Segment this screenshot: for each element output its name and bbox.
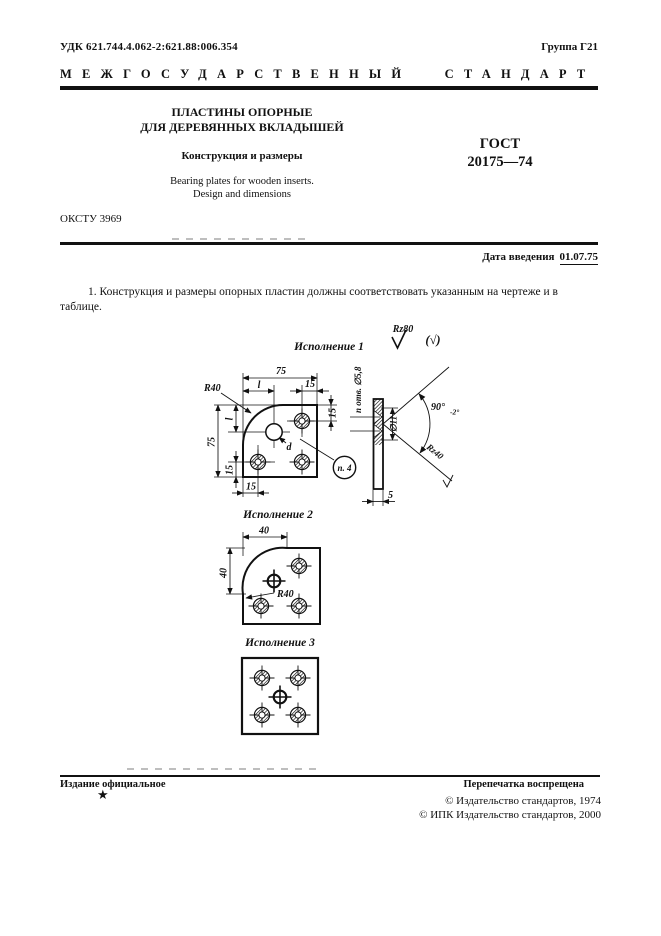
plate-outline (243, 548, 320, 624)
countersunk-hole (286, 666, 311, 691)
variant2-plan-view: Исполнение 2 40 40 R40 (219, 509, 321, 624)
dim-width-40: 40 (258, 526, 269, 537)
technical-drawing: Rz80 (√) Исполнение 1 75 l (150, 318, 522, 748)
dim-15-top: 15 (305, 379, 315, 390)
countersunk-hole (287, 554, 312, 579)
copyright-block: © Издательство стандартов, 1974 © ИПК Из… (419, 795, 601, 822)
variant1-side-view: n отв. ∅5,8 ∅11 90° -2° Rz40 5 (350, 366, 459, 506)
variant2-label: Исполнение 2 (242, 509, 313, 521)
countersunk-hole (286, 703, 311, 728)
angle-tolerance-label: -2° (450, 408, 459, 417)
effective-date-value: 01.07.75 (560, 251, 599, 265)
official-edition-label: Издание официальное (60, 779, 166, 790)
title-ru-line1: ПЛАСТИНЫ ОПОРНЫЕ (98, 105, 386, 120)
roughness-marks: Rz80 (√) (392, 324, 441, 348)
center-hole (269, 686, 292, 709)
variant3-label: Исполнение 3 (244, 637, 315, 649)
gost-number: 20175—74 (430, 153, 570, 171)
dim-15-left: 15 (225, 465, 236, 475)
footer-rule (60, 775, 600, 777)
variant1-plan-view: Исполнение 1 75 l 15 (203, 341, 364, 497)
dim-l-left: l (225, 417, 236, 420)
gost-designation: ГОСТ 20175—74 (430, 135, 570, 171)
standard-subtitle: Конструкция и размеры (98, 150, 386, 162)
star-icon: ★ (97, 787, 109, 803)
title-separator-rule (60, 242, 598, 245)
countersunk-hole (250, 703, 275, 728)
angle-label: 90° (431, 402, 445, 413)
roughness-alt-label: (√) (425, 333, 440, 347)
variant3-plan-view: Исполнение 3 (242, 637, 318, 734)
countersunk-hole (290, 450, 315, 475)
title-en-line1: Bearing plates for wooden inserts. (98, 176, 386, 189)
countersunk-hole (250, 666, 275, 691)
countersunk-hole (246, 450, 271, 475)
dim-height-40: 40 (219, 568, 230, 579)
effective-date-label: Дата введения (482, 251, 554, 263)
gost-label: ГОСТ (430, 135, 570, 153)
group-code: Группа Г21 (541, 41, 598, 53)
effective-date-line: Дата введения01.07.75 (482, 251, 598, 263)
title-ru-line2: ДЛЯ ДЕРЕВЯННЫХ ВКЛАДЫШЕЙ (98, 120, 386, 135)
thickness-label: 5 (388, 490, 393, 501)
variant1-label: Исполнение 1 (293, 341, 364, 353)
scan-artifact-bottom (127, 768, 322, 770)
gost-standard-page: УДК 621.744.4.062-2:621.88:006.354 Групп… (0, 0, 661, 936)
clause-1-text: 1. Конструкция и размеры опорных пластин… (60, 285, 601, 314)
countersunk-hole (290, 409, 315, 434)
udk-classification: УДК 621.744.4.062-2:621.88:006.354 (60, 41, 238, 53)
holes-note: n отв. ∅5,8 (353, 366, 363, 413)
dim-width-75: 75 (276, 366, 286, 377)
hole-diameter-label-d: d (287, 442, 293, 453)
title-en-line2: Design and dimensions (98, 189, 386, 202)
chamfer-roughness-label: Rz40 (424, 441, 446, 461)
standard-kind-heading: МЕЖГОСУДАРСТВЕННЫЙ СТАНДАРТ (60, 67, 605, 82)
radius-label-r40: R40 (203, 383, 221, 394)
dim-15-bottom: 15 (246, 482, 256, 493)
reprint-prohibited-label: Перепечатка воспрещена (464, 779, 584, 790)
dim-15-right: 15 (328, 408, 339, 418)
okstu-code: ОКСТУ 3969 (60, 213, 122, 225)
scan-artifact-top (172, 238, 307, 240)
dim-l-top: l (258, 380, 261, 391)
standard-title-ru: ПЛАСТИНЫ ОПОРНЫЕ ДЛЯ ДЕРЕВЯННЫХ ВКЛАДЫШЕ… (98, 105, 386, 134)
copyright-1974: © Издательство стандартов, 1974 (419, 795, 601, 809)
standard-title-en: Bearing plates for wooden inserts. Desig… (98, 176, 386, 201)
center-hole (266, 424, 282, 440)
roughness-main-label: Rz80 (392, 324, 414, 335)
dim-height-75: 75 (207, 437, 218, 447)
radius-label-r40: R40 (276, 589, 294, 600)
callout-label: п. 4 (337, 463, 352, 473)
heading-rule (60, 86, 598, 90)
copyright-2000: © ИПК Издательство стандартов, 2000 (419, 809, 601, 823)
